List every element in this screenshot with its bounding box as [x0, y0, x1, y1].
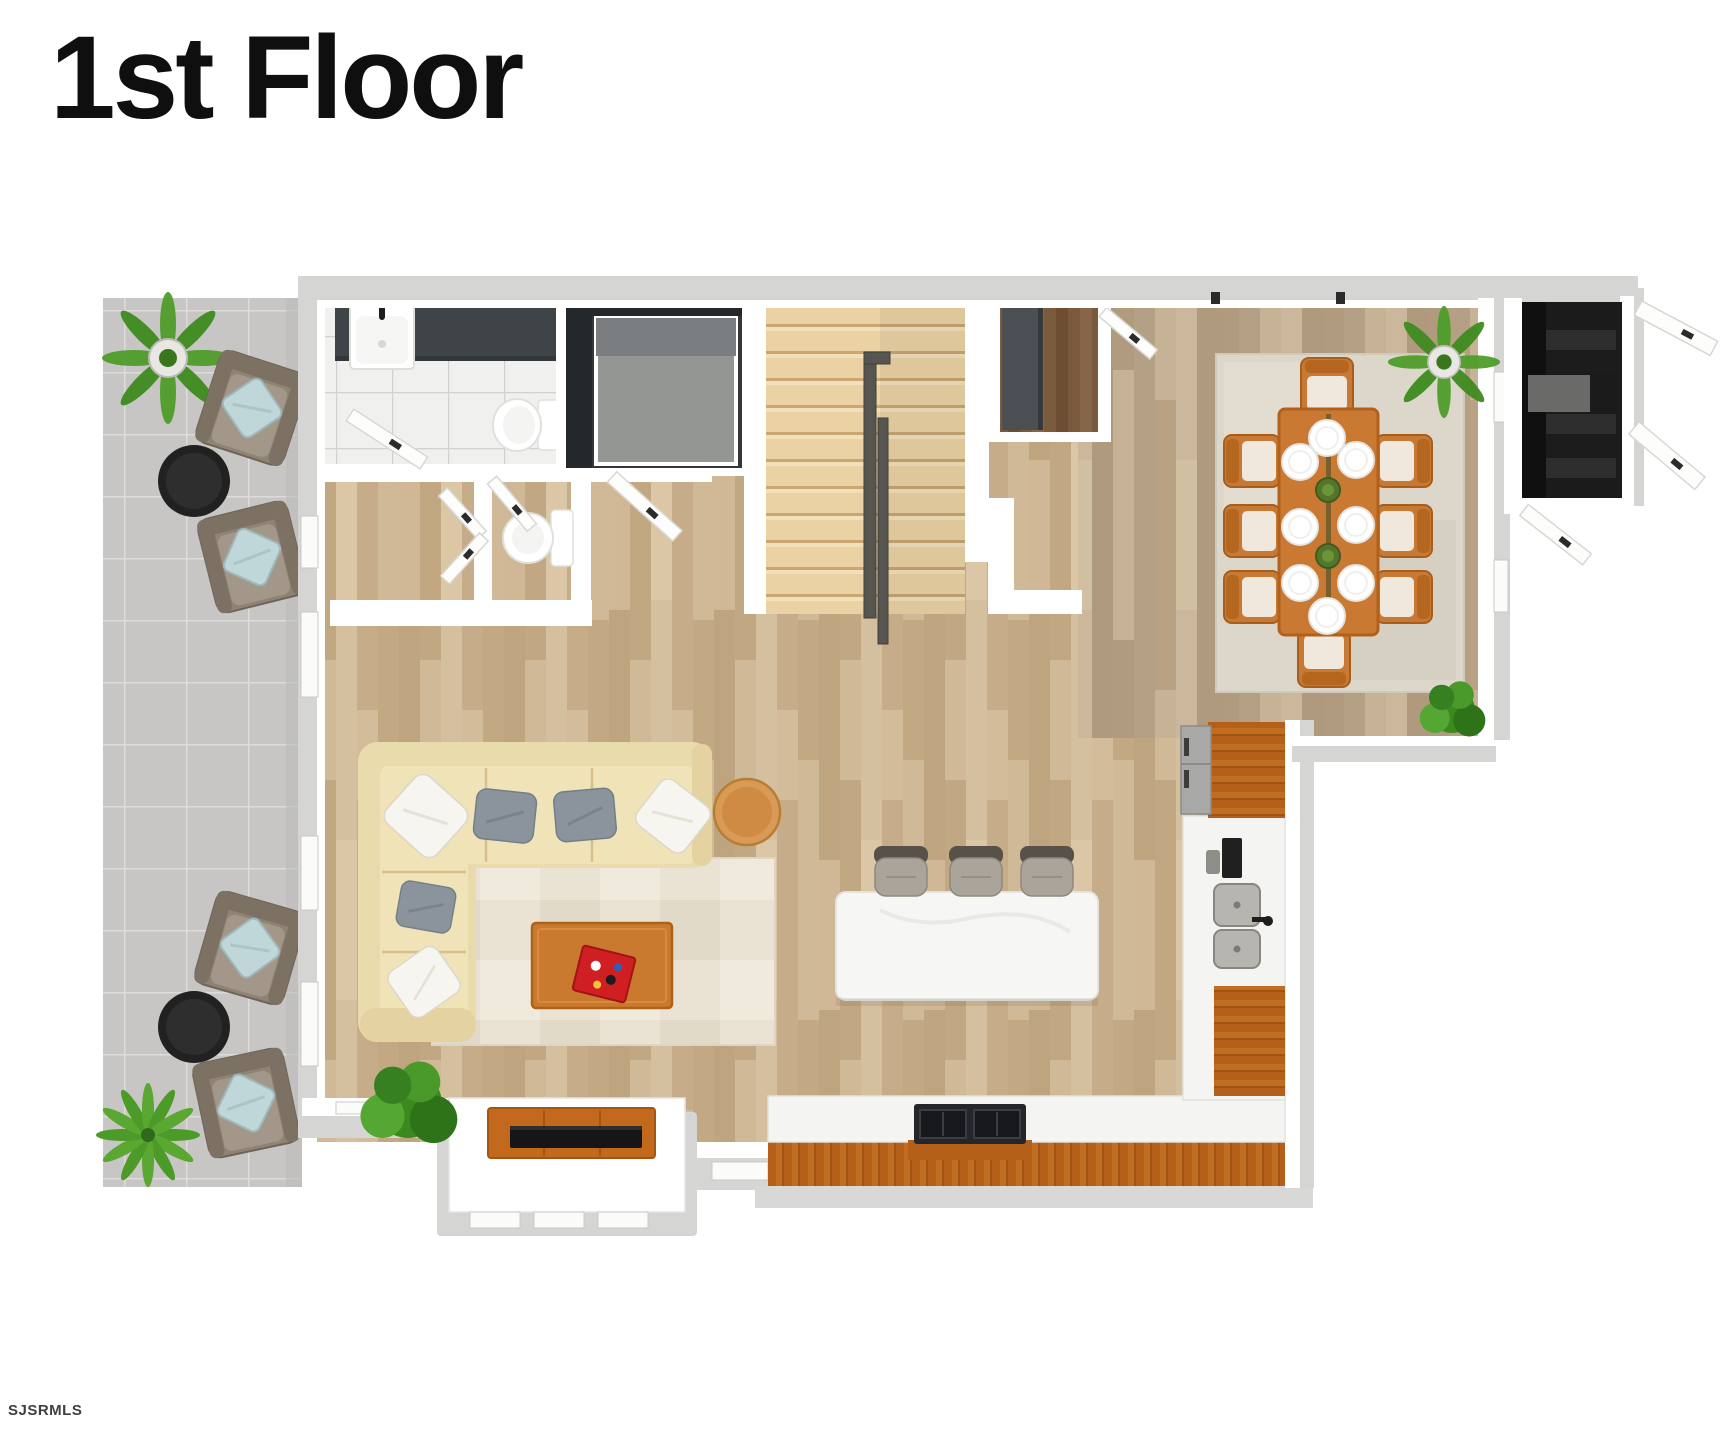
staircase: [744, 286, 989, 644]
dining-chair: [1376, 505, 1432, 557]
kitchen-lower-corner-cabinet: [1214, 986, 1285, 1096]
hall-wall-horizontal: [988, 590, 1082, 614]
sofa-pillow-gray: [395, 880, 457, 935]
kitchen-upper-corner-cabinet: [1208, 722, 1285, 818]
dinner-plate: [1338, 565, 1374, 601]
entry-door: [1634, 301, 1717, 356]
left-wall-window: [301, 516, 318, 568]
entry-left-wall: [1504, 298, 1522, 514]
dinner-plate: [1309, 598, 1345, 634]
sofa-pillow-gray: [553, 787, 617, 842]
entry-right-wall: [1620, 296, 1636, 502]
patio-armchair: [191, 1046, 301, 1159]
powder-right-wall: [571, 477, 591, 615]
kitchen-island: [836, 892, 1098, 1006]
bar-stool: [949, 846, 1003, 896]
tv-console: [488, 1108, 655, 1158]
kitchen-slab-edge: [755, 1186, 1313, 1208]
dining-chair: [1376, 571, 1432, 623]
left-wall-lining: [317, 300, 325, 1098]
television-edge: [510, 1126, 642, 1130]
side-table-round: [714, 779, 780, 845]
closet-bottom-wall: [330, 600, 592, 626]
floor-plan: [0, 0, 1728, 1440]
patio: [96, 292, 311, 1187]
dining-plant-top: [1388, 306, 1500, 418]
left-wall-window: [301, 612, 318, 697]
centerpiece-bowl: [1316, 544, 1340, 568]
dinner-plate: [1282, 509, 1318, 545]
bathroom-sink: [350, 301, 414, 369]
powder-sink: [503, 510, 573, 566]
top-wall-lining: [310, 300, 1486, 308]
left-wall-window: [301, 836, 318, 910]
dinner-plate: [1282, 444, 1318, 480]
dining-window: [1494, 560, 1508, 612]
dining-chair: [1376, 435, 1432, 487]
patio-slider-mark: [1211, 292, 1220, 304]
dinner-plate: [1282, 565, 1318, 601]
refrigerator: [1181, 726, 1211, 814]
patio-coffee-table: [158, 445, 230, 517]
cooktop: [908, 1104, 1032, 1160]
bar-stool: [1020, 846, 1074, 896]
patio-coffee-table: [158, 991, 230, 1063]
dining-bottom-wall: [1292, 746, 1496, 762]
closet-cabinet: [1002, 304, 1042, 430]
dining-chair: [1224, 571, 1280, 623]
dinner-plate: [1338, 507, 1374, 543]
top-wall: [298, 276, 1638, 302]
page-title: 1st Floor: [50, 10, 521, 146]
dinner-plate: [1338, 442, 1374, 478]
bottom-wall-window: [712, 1162, 768, 1180]
left-wall-window: [301, 982, 318, 1066]
entry-right-wall-outer: [1634, 288, 1644, 506]
stair-wall-left: [744, 294, 768, 614]
kitchen-counter-bottom: [768, 1096, 1285, 1142]
shower-wall-band-left: [566, 296, 592, 468]
toilet: [493, 399, 560, 451]
stair-flight-right-shade: [880, 300, 965, 614]
dining-chair: [1224, 435, 1280, 487]
dining-chair: [1298, 631, 1350, 687]
watermark: SJSRMLS: [8, 1402, 82, 1419]
dining-room: [1216, 306, 1500, 737]
centerpiece-bowl: [1316, 478, 1340, 502]
dining-chair: [1224, 505, 1280, 557]
bar-stool: [874, 846, 928, 896]
closet-cabinet-edge: [1038, 304, 1043, 430]
coffee-table: [532, 923, 672, 1008]
shower-floor-shadow: [596, 318, 736, 356]
kitchen-right-wall-outer: [1300, 720, 1314, 1188]
patio-slider-mark: [1336, 292, 1345, 304]
entry-vestibule: [1504, 288, 1718, 565]
sofa-pillow-gray: [473, 788, 538, 844]
dining-chair: [1301, 358, 1353, 414]
